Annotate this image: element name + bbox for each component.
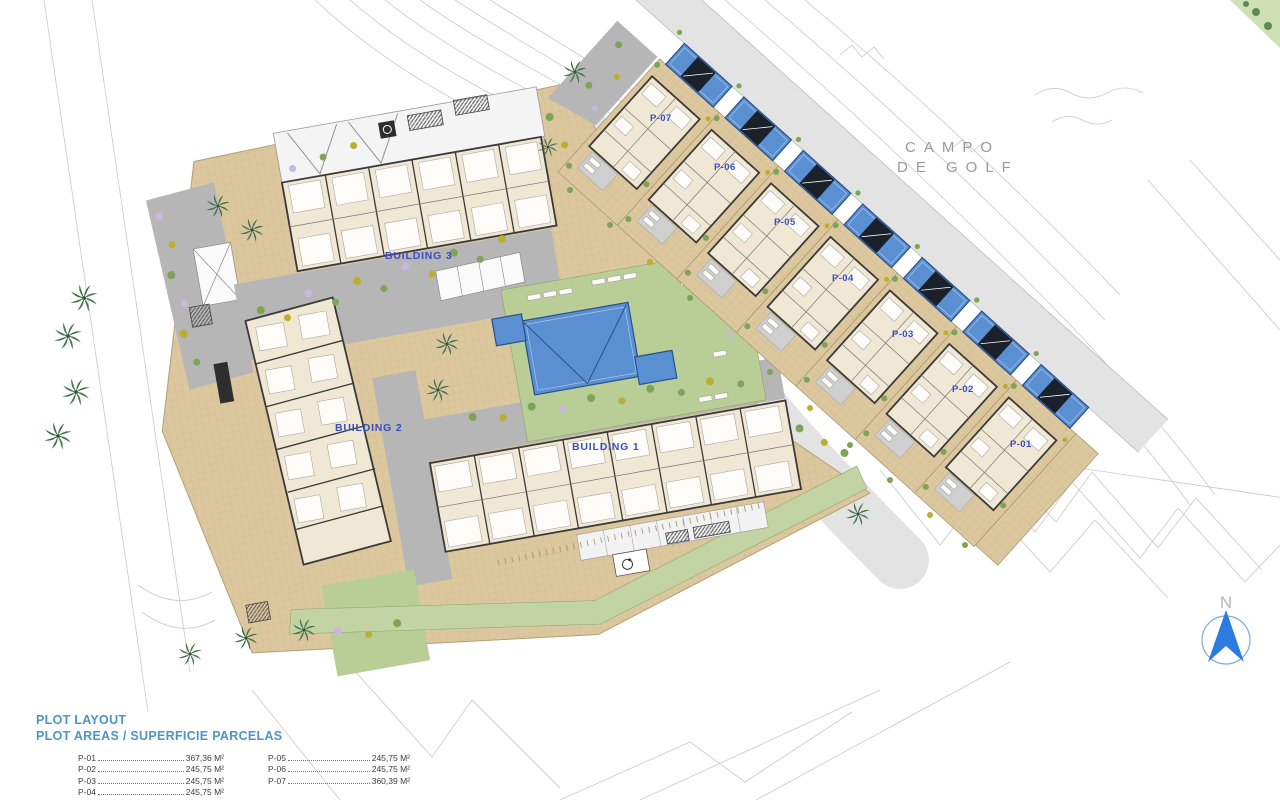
plot-label-p03: P-03 (892, 329, 914, 340)
legend-plot-id: P-02 (78, 764, 96, 774)
legend-plot-id: P-03 (78, 776, 96, 786)
golf-label-line2: DE GOLF (897, 159, 1019, 176)
plot-label-p06: P-06 (714, 162, 736, 173)
north-letter: N (1220, 593, 1232, 612)
building-3-label: BUILDING 3 (385, 250, 453, 262)
plot-label-p02: P-02 (952, 384, 974, 395)
site-plan-page: { "site": { "golf_label_line1": "CAMPO",… (0, 0, 1280, 800)
plot-label-p01: P-01 (1010, 439, 1032, 450)
legend-column-1: P-01367,36 M² P-02245,75 M² P-03245,75 M… (78, 751, 224, 797)
site-plan-drawing: P-07 P-06 P-05 P-04 P-03 P-02 P-01 BUILD… (0, 0, 1280, 800)
building-2-label: BUILDING 2 (335, 422, 403, 434)
legend-plot-id: P-05 (268, 753, 286, 763)
dotted-leader (288, 760, 370, 761)
legend-row: P-01367,36 M² (78, 751, 224, 763)
legend-row: P-05245,75 M² (268, 751, 410, 763)
plot-label-p04: P-04 (832, 273, 854, 284)
legend-plot-area: 245,75 M² (186, 776, 224, 786)
legend-plot-id: P-07 (268, 776, 286, 786)
stairs (189, 304, 212, 327)
dotted-leader (288, 783, 370, 784)
stairs (246, 601, 271, 623)
legend-row: P-06245,75 M² (268, 763, 410, 775)
legend-plot-area: 245,75 M² (372, 764, 410, 774)
legend-row: P-04245,75 M² (78, 786, 224, 798)
legend: PLOT LAYOUT PLOT AREAS / SUPERFICIE PARC… (36, 712, 456, 751)
legend-column-2: P-05245,75 M² P-06245,75 M² P-07360,39 M… (268, 751, 410, 786)
small-pool (635, 350, 677, 384)
golf-label-line1: CAMPO (905, 139, 1000, 156)
legend-row: P-02245,75 M² (78, 763, 224, 775)
legend-plot-area: 245,75 M² (372, 753, 410, 763)
legend-subtitle: PLOT AREAS / SUPERFICIE PARCELAS (36, 728, 456, 744)
legend-plot-area: 367,36 M² (186, 753, 224, 763)
legend-plot-area: 245,75 M² (186, 764, 224, 774)
dotted-leader (98, 783, 184, 784)
legend-plot-id: P-01 (78, 753, 96, 763)
legend-plot-area: 360,39 M² (372, 776, 410, 786)
dotted-leader (98, 760, 184, 761)
legend-plot-id: P-06 (268, 764, 286, 774)
plot-label-p07: P-07 (650, 113, 672, 124)
legend-row: P-03245,75 M² (78, 774, 224, 786)
small-pool (492, 314, 526, 346)
dotted-leader (98, 794, 184, 795)
legend-plot-area: 245,75 M² (186, 787, 224, 797)
building-1-label: BUILDING 1 (572, 441, 640, 453)
dotted-leader (98, 771, 184, 772)
legend-row: P-07360,39 M² (268, 774, 410, 786)
dotted-leader (288, 771, 370, 772)
plot-label-p05: P-05 (774, 217, 796, 228)
legend-title: PLOT LAYOUT (36, 712, 456, 728)
legend-plot-id: P-04 (78, 787, 96, 797)
